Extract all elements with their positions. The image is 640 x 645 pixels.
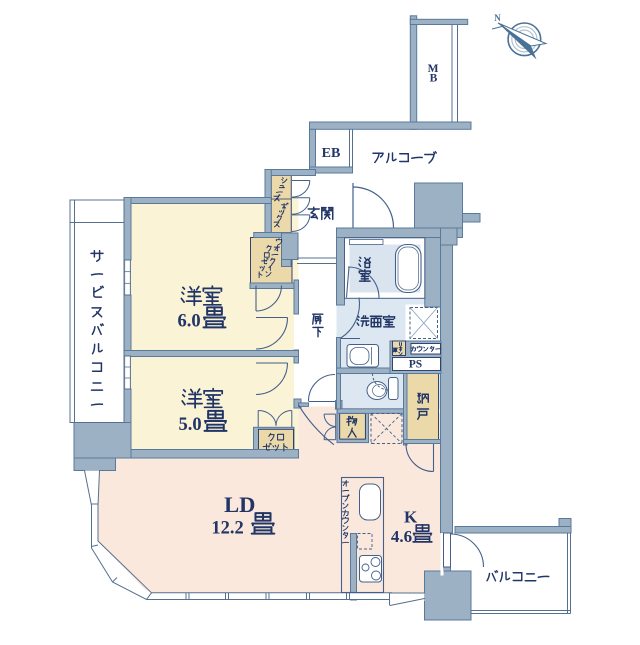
svg-text:4.6: 4.6 xyxy=(391,527,412,546)
svg-text:B: B xyxy=(430,73,438,85)
svg-text:6.0: 6.0 xyxy=(177,312,200,332)
svg-text:K: K xyxy=(404,508,418,527)
svg-text:PS: PS xyxy=(409,359,422,371)
svg-text:EB: EB xyxy=(322,146,341,161)
svg-text:12.2: 12.2 xyxy=(211,519,243,539)
svg-text:N: N xyxy=(494,13,501,23)
svg-text:LD: LD xyxy=(224,492,255,517)
svg-text:5.0: 5.0 xyxy=(178,415,201,435)
